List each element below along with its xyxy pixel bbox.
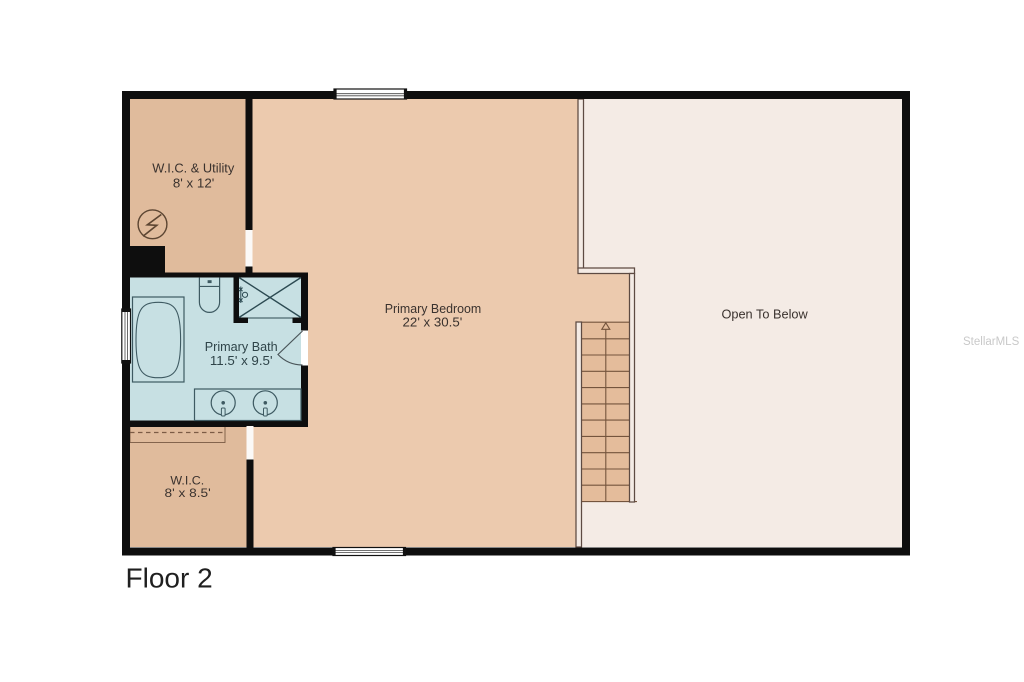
svg-text:22' x 30.5': 22' x 30.5' (403, 315, 463, 329)
svg-text:8' x 12': 8' x 12' (173, 176, 215, 191)
svg-text:Open To Below: Open To Below (721, 306, 808, 321)
svg-text:Primary Bath: Primary Bath (205, 340, 278, 354)
svg-text:Floor 2: Floor 2 (126, 563, 213, 594)
svg-text:Primary Bedroom: Primary Bedroom (385, 302, 482, 316)
svg-text:StellarMLS: StellarMLS (963, 336, 1020, 348)
svg-text:11.5' x 9.5': 11.5' x 9.5' (210, 354, 273, 368)
svg-text:8' x 8.5': 8' x 8.5' (165, 486, 211, 500)
svg-text:W.I.C. & Utility: W.I.C. & Utility (152, 161, 234, 176)
